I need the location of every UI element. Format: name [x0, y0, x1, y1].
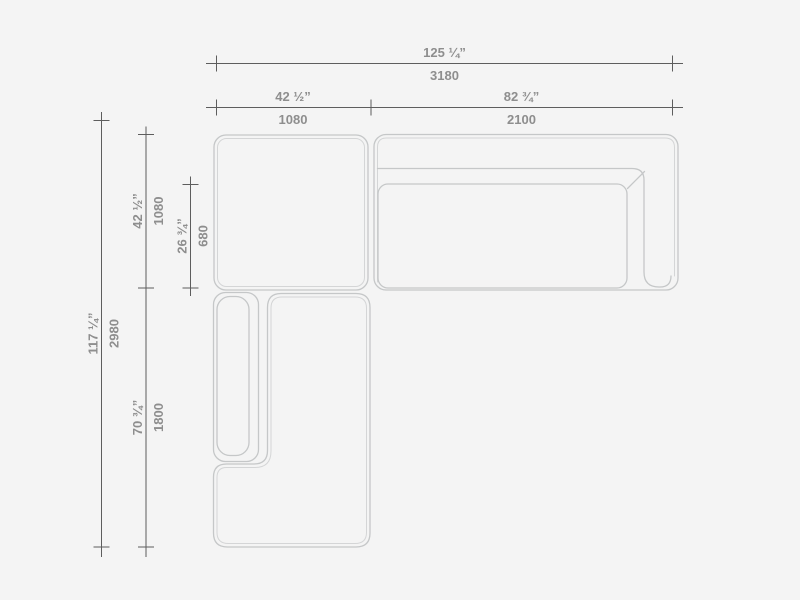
- dim-seat-depth-inches: 26 ¾”: [175, 218, 190, 253]
- ottoman-module: [214, 135, 368, 290]
- sofa-inner-line: [378, 138, 675, 282]
- sofa-dimension-drawing: 125 ¼” 3180 42 ½” 1080 82 ¾” 2100 117 ¼”…: [0, 0, 800, 600]
- sofa-seat-cushion: [378, 184, 627, 288]
- dim-overall-depth-mm: 2980: [107, 319, 122, 348]
- dim-ottoman-width-inches: 42 ½”: [275, 89, 310, 104]
- dim-ottoman-width-mm: 1080: [279, 112, 308, 127]
- dim-ottoman-depth-mm: 1080: [151, 197, 166, 226]
- dim-chaise-length-mm: 1800: [151, 403, 166, 432]
- dim-overall-depth-inches: 117 ¼”: [86, 313, 101, 355]
- chaise-inner-line: [217, 297, 367, 544]
- dim-sofa-width-inches: 82 ¾”: [504, 89, 539, 104]
- chaise-outline: [214, 294, 371, 548]
- ottoman-inner-line: [218, 139, 365, 287]
- furniture-plan: [214, 135, 679, 548]
- sofa-module: [374, 135, 678, 291]
- dim-sofa-width-mm: 2100: [507, 112, 536, 127]
- dimension-overall-depth: 117 ¼” 2980: [86, 112, 122, 557]
- sofa-corner-seam-line: [628, 172, 645, 189]
- dimension-annotations: 125 ¼” 3180 42 ½” 1080 82 ¾” 2100 117 ¼”…: [86, 45, 684, 557]
- dim-overall-width-mm: 3180: [430, 68, 459, 83]
- chaise-arm-cushion: [217, 297, 249, 456]
- dim-seat-depth-mm: 680: [196, 225, 211, 247]
- dimension-module-widths: 42 ½” 1080 82 ¾” 2100: [206, 89, 683, 127]
- chaise-arm-outline: [214, 293, 259, 462]
- dim-overall-width-inches: 125 ¼”: [423, 45, 466, 60]
- dimension-overall-width: 125 ¼” 3180: [206, 45, 683, 83]
- dim-chaise-length-inches: 70 ¾”: [130, 400, 145, 435]
- ottoman-outline: [214, 135, 368, 290]
- sofa-outline: [374, 135, 678, 291]
- dimension-module-depths: 42 ½” 1080 70 ¾” 1800: [130, 127, 166, 558]
- dimension-seat-depth: 26 ¾” 680: [175, 177, 211, 297]
- chaise-module: [214, 293, 371, 548]
- dim-ottoman-depth-inches: 42 ½”: [130, 193, 145, 228]
